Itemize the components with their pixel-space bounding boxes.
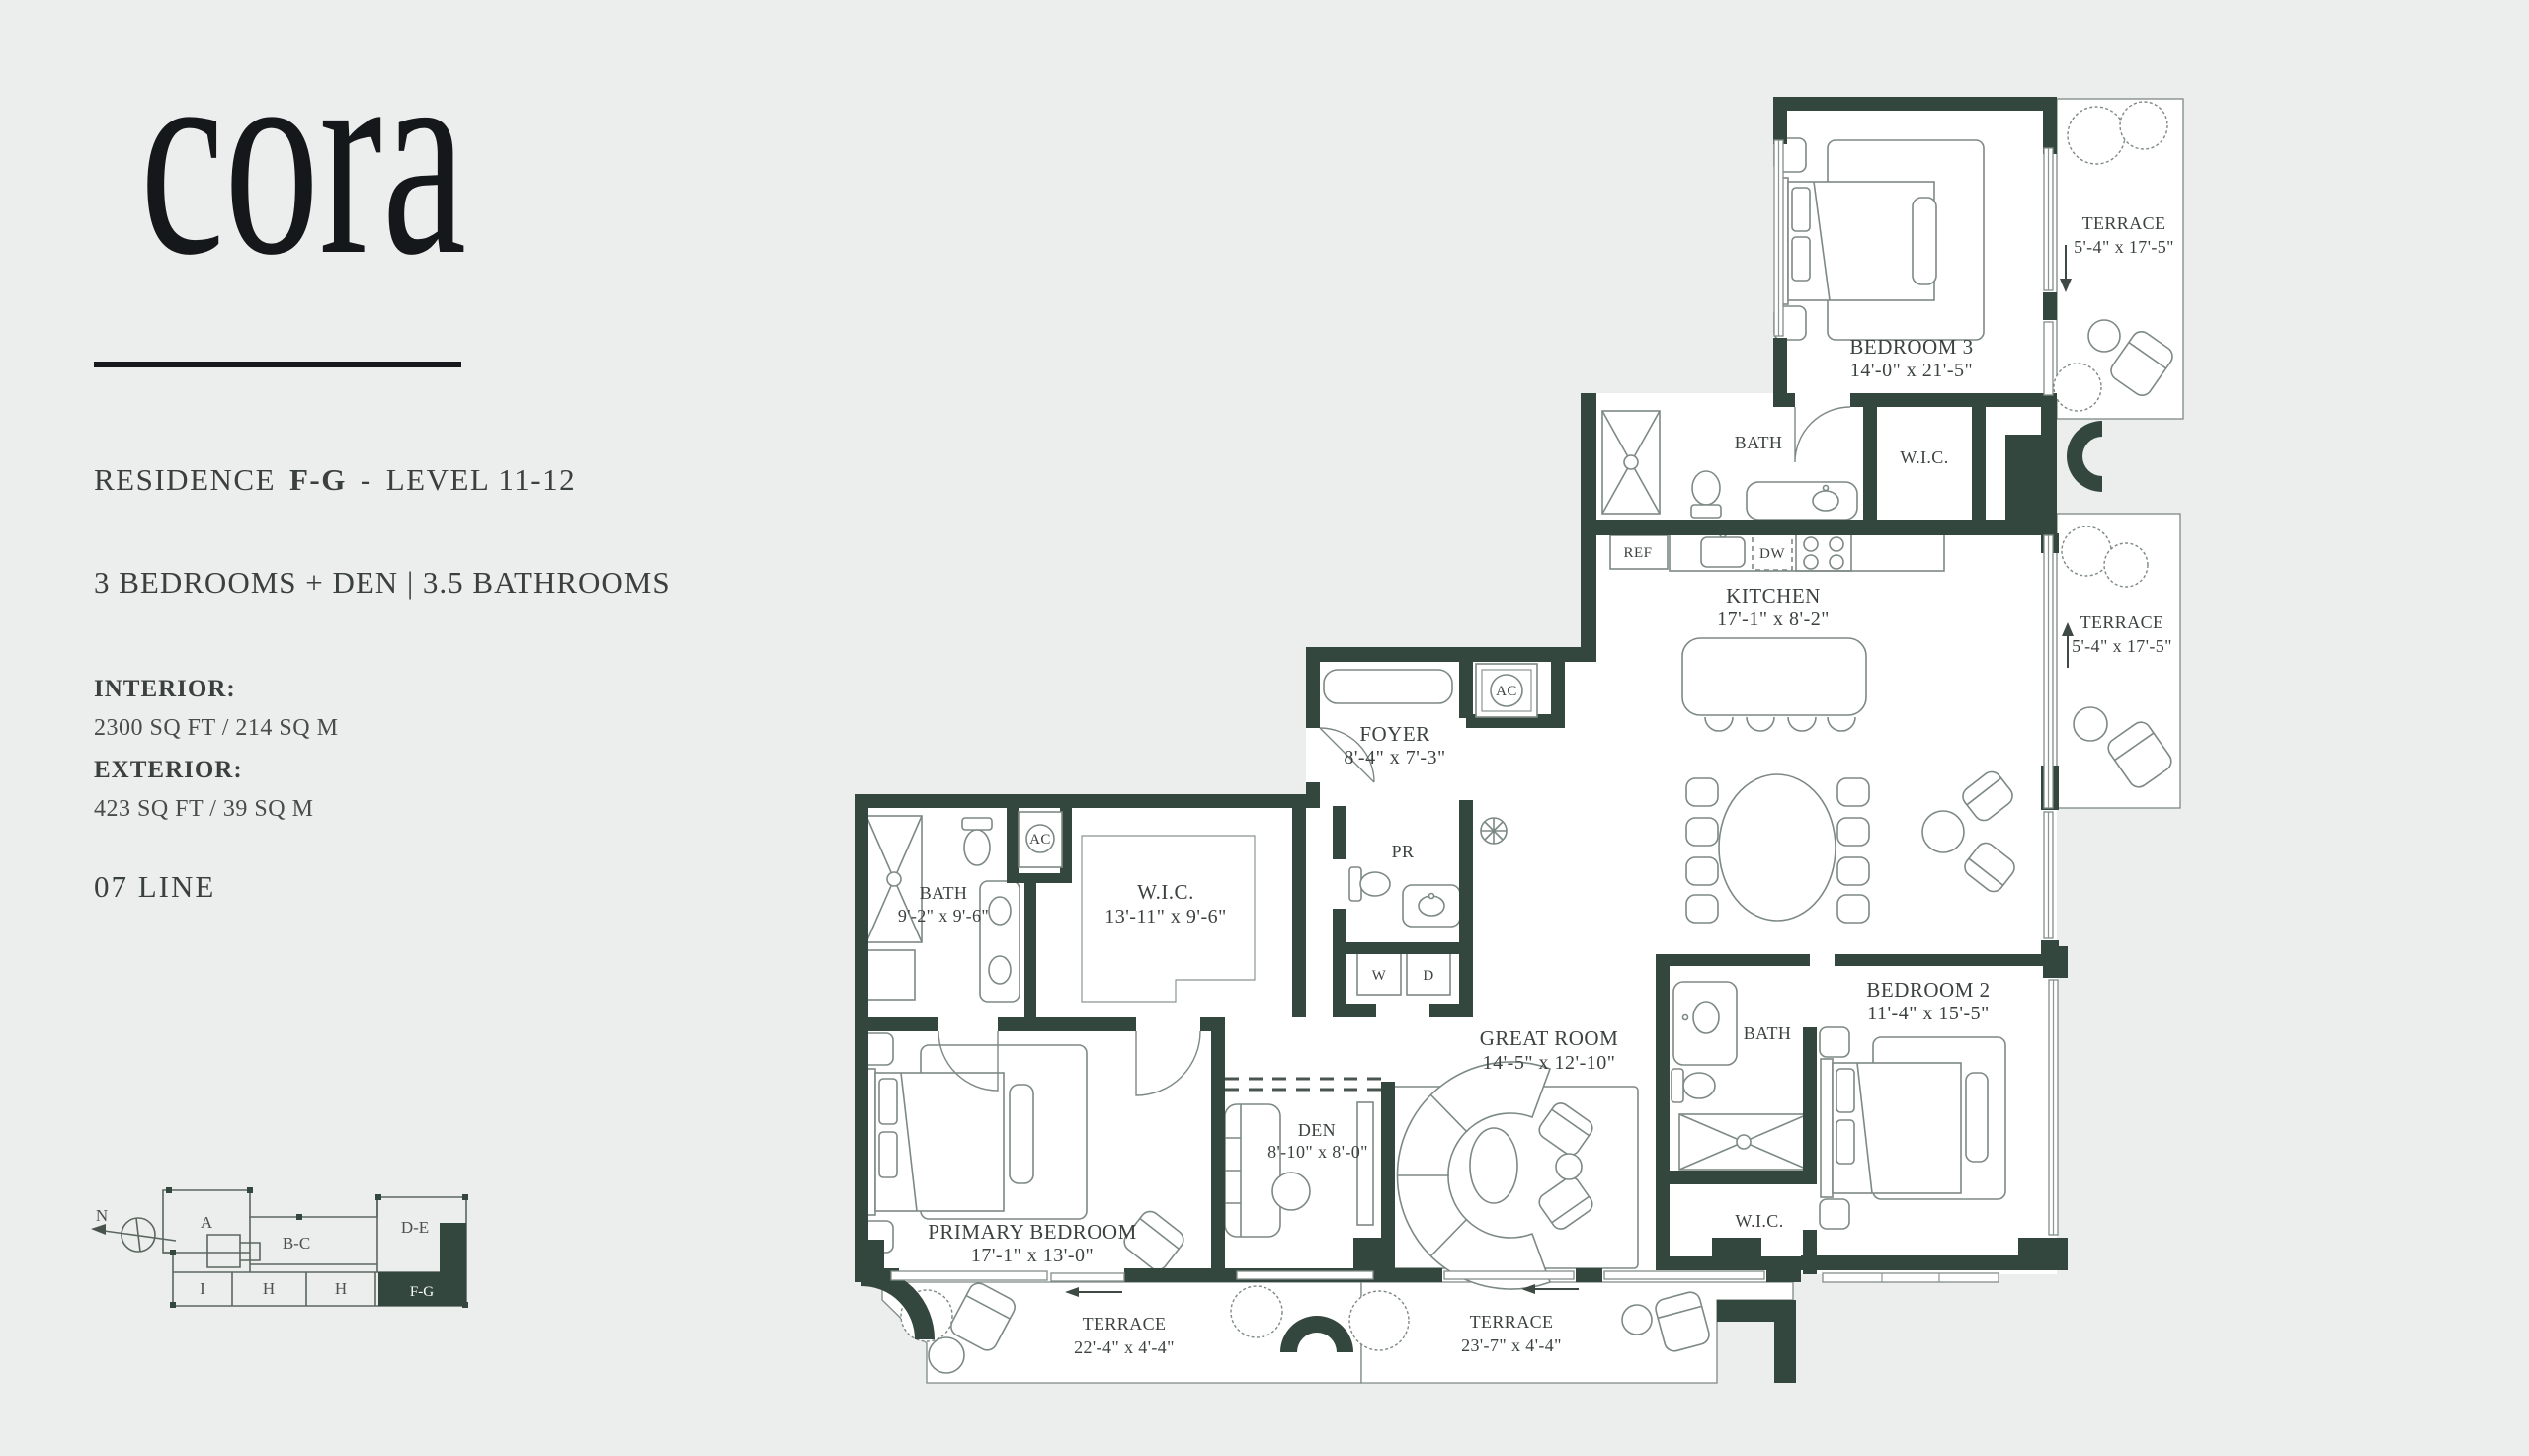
keyplan-unit-i: I xyxy=(200,1279,205,1298)
coffee-table xyxy=(1470,1128,1517,1203)
residence-level: LEVEL 11-12 xyxy=(386,462,576,497)
terrace-e-dims: 5'-4" x 17'-5" xyxy=(2072,636,2172,656)
keyplan: N A B-C D-E I H H F-G xyxy=(74,1175,499,1329)
keyplan-unit-h1: H xyxy=(263,1279,275,1298)
terrace-s-dims: 23'-7" x 4'-4" xyxy=(1461,1335,1562,1355)
tree-icon xyxy=(2104,543,2148,587)
side-table xyxy=(1556,1154,1582,1179)
interior-label: INTERIOR: xyxy=(94,676,236,703)
keyplan-unit-h2: H xyxy=(335,1279,347,1298)
terrace-e-label: TERRACE xyxy=(2080,612,2164,632)
bedroom2-label: BEDROOM 2 xyxy=(1866,978,1990,1002)
bedroom2-dims: 11'-4" x 15'-5" xyxy=(1867,1003,1990,1024)
den-label: DEN xyxy=(1298,1120,1336,1140)
foyer-fixtures xyxy=(1324,670,1452,703)
keyplan-unit-bc: B-C xyxy=(283,1234,310,1253)
primary-wic-label: W.I.C. xyxy=(1137,880,1194,904)
line-label: 07 LINE xyxy=(94,869,215,905)
dining-table xyxy=(1719,774,1836,921)
bath3-label: BATH xyxy=(1735,433,1783,452)
tree-icon xyxy=(2068,107,2125,164)
ottoman xyxy=(1272,1173,1310,1210)
ref-label: REF xyxy=(1623,545,1652,561)
terrace-sw-dims: 22'-4" x 4'-4" xyxy=(1074,1337,1175,1357)
terrace-ne-label: TERRACE xyxy=(2082,213,2166,233)
primary-bath-label: BATH xyxy=(920,883,968,903)
den-dims: 8'-10" x 8'-0" xyxy=(1267,1142,1368,1162)
round-table xyxy=(1922,811,1964,852)
primary-bath-dims: 9'-2" x 9'-6" xyxy=(898,906,989,926)
brand-logo: cora xyxy=(138,40,494,316)
wic2-label: W.I.C. xyxy=(1735,1211,1783,1231)
kitchen-island xyxy=(1682,638,1866,715)
svg-text:AC: AC xyxy=(1029,832,1051,848)
terrace-sw-label: TERRACE xyxy=(1083,1314,1167,1334)
primary-wic-dims: 13'-11" x 9'-6" xyxy=(1104,906,1227,928)
wic3-label: W.I.C. xyxy=(1900,447,1948,467)
kitchen-dims: 17'-1" x 8'-2" xyxy=(1717,608,1830,630)
divider-rule xyxy=(94,362,461,367)
tree-icon xyxy=(1231,1286,1282,1337)
washer-label: W xyxy=(1372,968,1387,984)
residence-dash: - xyxy=(361,462,372,497)
primary-bedroom-label: PRIMARY BEDROOM xyxy=(928,1220,1137,1244)
foyer-label: FOYER xyxy=(1359,722,1429,746)
bedroom3-dims: 14'-0" x 21'-5" xyxy=(1850,360,1973,381)
interior-value: 2300 SQ FT / 214 SQ M xyxy=(94,715,338,742)
keyplan-unit-fg: F-G xyxy=(410,1284,434,1300)
svg-text:AC: AC xyxy=(1496,684,1517,699)
foyer-dims: 8'-4" x 7'-3" xyxy=(1344,747,1445,768)
media-console xyxy=(1357,1102,1373,1225)
tree-icon xyxy=(1349,1291,1409,1350)
tree-icon xyxy=(2054,364,2101,411)
residence-unit: F-G xyxy=(289,462,347,497)
exterior-value: 423 SQ FT / 39 SQ M xyxy=(94,796,313,823)
arch-facade-ne xyxy=(2067,421,2102,492)
dw-label: DW xyxy=(1759,546,1785,562)
terrace-s-label: TERRACE xyxy=(1470,1312,1554,1332)
north-label: N xyxy=(96,1206,108,1225)
bath2-label: BATH xyxy=(1744,1023,1792,1043)
exterior-label: EXTERIOR: xyxy=(94,757,243,784)
foyer-console xyxy=(1324,670,1452,703)
terrace-ne-dims: 5'-4" x 17'-5" xyxy=(2074,237,2174,257)
residence-label: RESIDENCE xyxy=(94,462,276,497)
brand-logo-text: cora xyxy=(140,40,466,314)
ceiling-fan-icon xyxy=(1481,818,1507,844)
tree-icon xyxy=(2120,102,2167,149)
pr-label: PR xyxy=(1392,842,1415,861)
residence-title: RESIDENCEF-G-LEVEL 11-12 xyxy=(94,462,576,498)
configuration-line: 3 BEDROOMS + DEN | 3.5 BATHROOMS xyxy=(94,565,671,601)
primary-bedroom-dims: 17'-1" x 13'-0" xyxy=(971,1245,1094,1266)
kitchen-label: KITCHEN xyxy=(1726,584,1821,607)
keyplan-unit-a: A xyxy=(201,1213,213,1232)
dryer-label: D xyxy=(1423,968,1433,984)
keyplan-unit-de: D-E xyxy=(401,1218,429,1237)
ac-unit-foyer: AC xyxy=(1476,664,1537,717)
ac-unit-bath: AC xyxy=(1019,812,1062,867)
great-room-label: GREAT ROOM xyxy=(1480,1026,1619,1050)
floorplan: AC AC BEDROOM 3 14'-0" x 21'-5" TERRACE … xyxy=(845,84,2208,1398)
floorplan-page: cora RESIDENCEF-G-LEVEL 11-12 3 BEDROOMS… xyxy=(0,0,2529,1456)
great-room-dims: 14'-5" x 12'-10" xyxy=(1483,1052,1616,1074)
tree-icon xyxy=(2062,526,2111,576)
terrace-s-floor xyxy=(1361,1282,1793,1383)
bedroom3-label: BEDROOM 3 xyxy=(1849,335,1973,359)
